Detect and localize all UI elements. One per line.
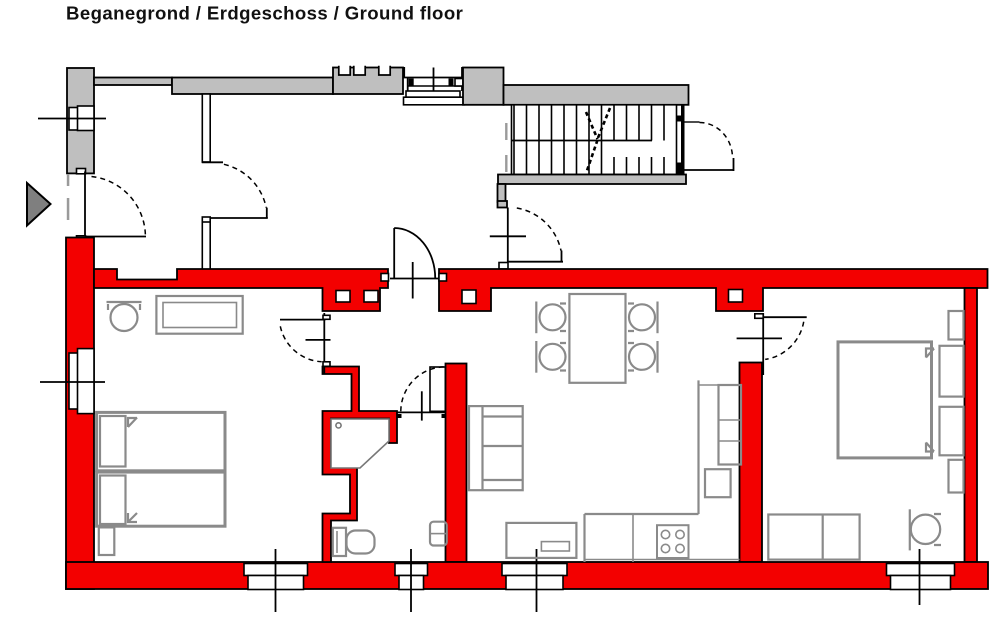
- svg-text:Beganegrond / Erdgeschoss / Gr: Beganegrond / Erdgeschoss / Ground floor: [66, 3, 463, 24]
